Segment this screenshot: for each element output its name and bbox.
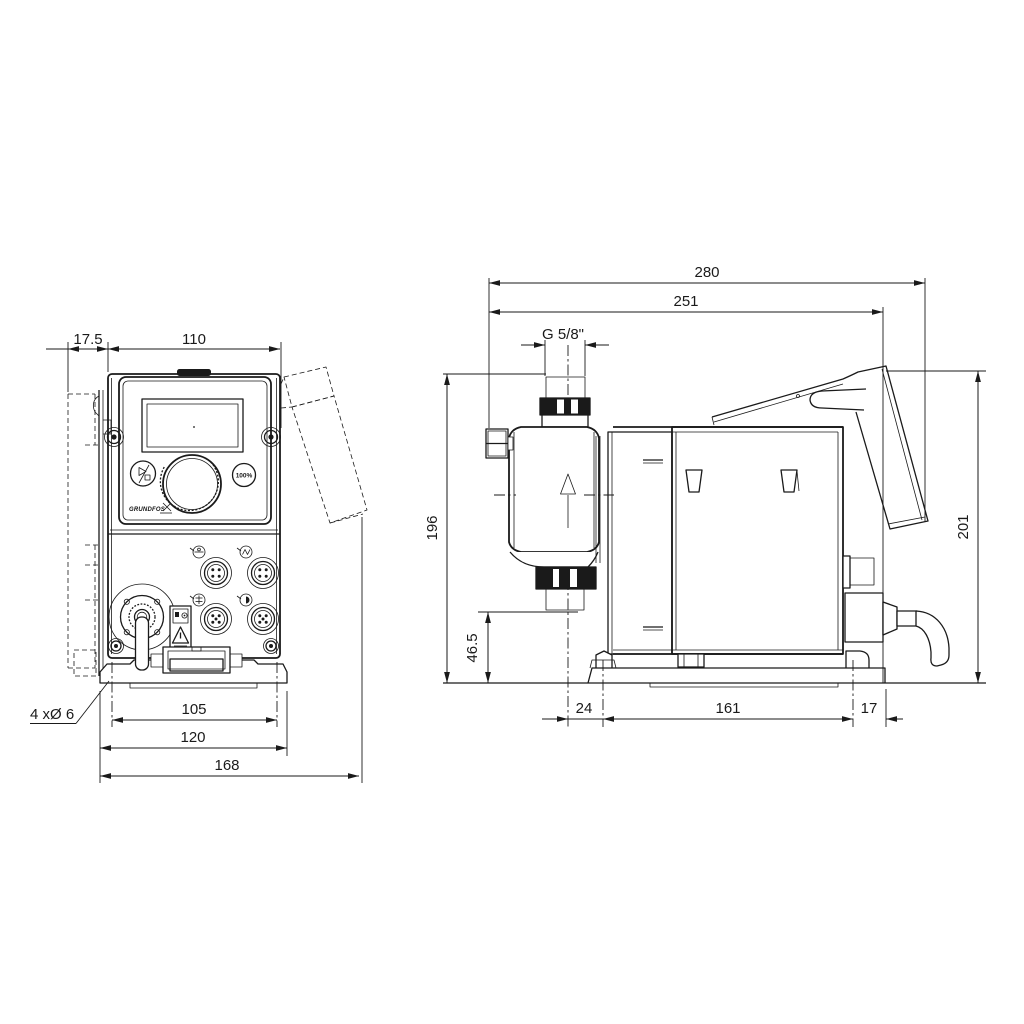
- level-signal-icon: [190, 594, 205, 606]
- top-tab: [177, 369, 211, 376]
- mounting-screw-left: [109, 639, 124, 654]
- dim-offset-17-5: 17.5: [73, 331, 102, 348]
- housing-clip-right: [781, 470, 797, 492]
- start-stop-button[interactable]: [131, 461, 156, 486]
- knob-knurl: [160, 462, 218, 511]
- dim-hole-spacing-105: 105: [181, 701, 206, 718]
- thread-top: [546, 377, 585, 400]
- brand-logo: GRUNDFOS: [129, 503, 172, 513]
- mounting-holes-leader: 4 xØ 6: [30, 681, 109, 724]
- wall-plate-hidden: [68, 394, 99, 676]
- gland-thread: [850, 558, 874, 585]
- connector-m12-top-left[interactable]: [201, 558, 232, 589]
- panel-screw-left: [105, 428, 124, 447]
- display: [142, 399, 243, 452]
- dim-base-offset-24: 24: [576, 700, 593, 717]
- thread-bottom: [546, 589, 584, 610]
- label-mounting-holes: 4 xØ 6: [30, 706, 74, 723]
- warning-label: [170, 606, 191, 649]
- base-plate-front: [100, 647, 287, 688]
- drawing-svg: 100% GRUNDFOS: [0, 0, 1024, 1024]
- valve-top: [540, 377, 590, 427]
- dim-overall-280: 280: [694, 264, 719, 281]
- connection-section: [109, 546, 279, 654]
- pulse-signal-icon: [237, 546, 252, 558]
- control-panel: 100% GRUNDFOS: [105, 377, 281, 534]
- power-cable-front: [136, 617, 149, 670]
- cover-tilted: [712, 366, 928, 529]
- dim-thread-g58: G 5/8": [542, 326, 584, 343]
- relay-signal-icon: [237, 594, 252, 606]
- signal-cable: [916, 611, 949, 666]
- motor-housing: [613, 427, 843, 654]
- base-plate-side: [443, 651, 986, 687]
- side-view-drawing: 280 251 G 5/8" 196 46.5 201 24 161: [424, 264, 986, 727]
- mounting-screw-right: [264, 639, 279, 654]
- connector-m12-bottom-left[interactable]: [201, 604, 232, 635]
- panel-screw-right: [262, 428, 281, 447]
- housing-clip-left: [686, 470, 702, 492]
- analog-signal-icon: [190, 546, 205, 558]
- dim-plate-width-120: 120: [180, 729, 205, 746]
- dim-valve-height-46-5: 46.5: [464, 633, 481, 662]
- dim-height-196: 196: [424, 515, 441, 540]
- dim-flange-251: 251: [673, 293, 698, 310]
- valve-bottom: [510, 552, 598, 610]
- dim-base-holes-161: 161: [715, 700, 740, 717]
- dosing-head: [486, 427, 614, 552]
- dim-width-110: 110: [182, 331, 206, 348]
- capacity-100-button[interactable]: 100%: [233, 464, 256, 487]
- capacity-button-label: 100%: [236, 473, 253, 480]
- front-view-drawing: 100% GRUNDFOS: [30, 331, 367, 783]
- dim-base-edge-17: 17: [861, 700, 878, 717]
- dim-overall-height-201: 201: [955, 514, 972, 539]
- cable-gland-side: [843, 556, 949, 666]
- rail-clamp: [151, 647, 242, 673]
- connector-m12-top-right[interactable]: [248, 558, 279, 589]
- connector-m12-bottom-right[interactable]: [248, 604, 279, 635]
- cover-hidden-dashed: [281, 367, 367, 523]
- svg-text:GRUNDFOS: GRUNDFOS: [129, 507, 165, 513]
- adapter-flange: [596, 432, 672, 654]
- dimensional-drawing-sheet: 100% GRUNDFOS: [0, 0, 1024, 1024]
- dim-depth-168: 168: [214, 757, 239, 774]
